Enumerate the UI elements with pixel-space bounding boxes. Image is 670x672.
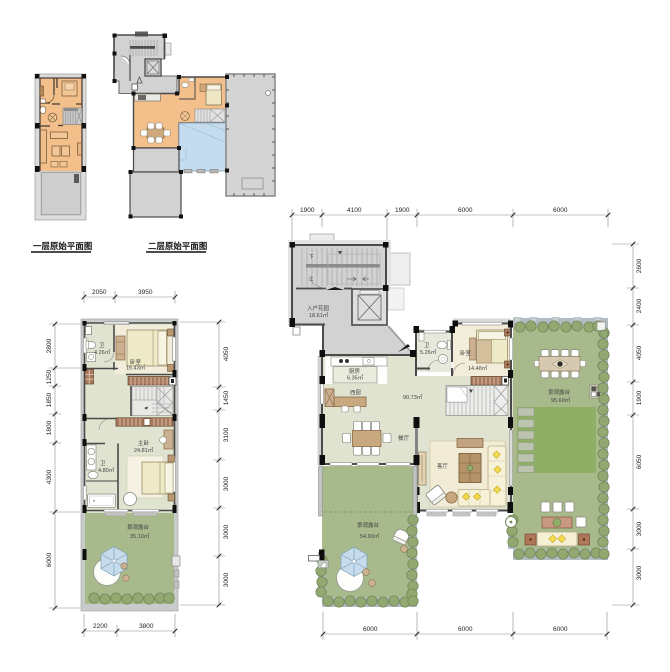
svg-text:1450: 1450 (223, 390, 230, 405)
svg-text:3000: 3000 (636, 521, 643, 536)
svg-text:18.61㎡: 18.61㎡ (309, 311, 329, 319)
svg-text:14.48㎡: 14.48㎡ (468, 364, 488, 372)
svg-text:2600: 2600 (636, 258, 643, 273)
svg-text:1250: 1250 (46, 369, 53, 384)
svg-text:4050: 4050 (223, 346, 230, 361)
svg-text:1900: 1900 (636, 390, 643, 405)
svg-text:2200: 2200 (93, 623, 108, 630)
svg-text:景观露台: 景观露台 (548, 388, 571, 396)
svg-text:6000: 6000 (458, 207, 473, 214)
svg-text:3000: 3000 (223, 572, 230, 587)
svg-text:3000: 3000 (636, 565, 643, 580)
svg-text:24.81㎡: 24.81㎡ (134, 446, 154, 454)
svg-text:6050: 6050 (636, 454, 643, 469)
svg-text:6000: 6000 (553, 626, 568, 633)
svg-text:卫: 卫 (99, 342, 105, 349)
svg-text:二层原始平面图: 二层原始平面图 (148, 241, 207, 251)
svg-text:1850: 1850 (46, 392, 53, 407)
svg-text:90.73㎡: 90.73㎡ (403, 393, 423, 401)
svg-text:卫: 卫 (100, 460, 106, 467)
svg-text:1900: 1900 (300, 207, 315, 214)
svg-text:6000: 6000 (46, 552, 53, 567)
svg-text:餐厅: 餐厅 (398, 434, 410, 442)
svg-text:5.26㎡: 5.26㎡ (420, 348, 437, 356)
svg-text:西厨: 西厨 (350, 390, 362, 397)
svg-text:景观露台: 景观露台 (357, 521, 380, 529)
svg-text:厨房: 厨房 (349, 367, 361, 375)
svg-text:4300: 4300 (46, 469, 53, 484)
svg-text:客厅: 客厅 (437, 462, 449, 470)
svg-text:3950: 3950 (138, 289, 153, 296)
svg-text:4100: 4100 (347, 207, 362, 214)
svg-text:6000: 6000 (458, 626, 473, 633)
svg-text:6000: 6000 (363, 626, 378, 633)
svg-text:主卧: 主卧 (138, 439, 150, 447)
svg-text:4050: 4050 (636, 345, 643, 360)
svg-text:3000: 3000 (223, 476, 230, 491)
svg-text:1800: 1800 (46, 420, 53, 435)
svg-text:4.80㎡: 4.80㎡ (98, 466, 115, 474)
svg-text:3800: 3800 (139, 623, 154, 630)
svg-text:4.26㎡: 4.26㎡ (94, 348, 111, 356)
svg-text:1900: 1900 (395, 207, 410, 214)
svg-text:16.43㎡: 16.43㎡ (126, 364, 146, 372)
svg-text:2400: 2400 (636, 298, 643, 313)
svg-text:6.35㎡: 6.35㎡ (347, 374, 364, 382)
svg-text:54.90㎡: 54.90㎡ (360, 532, 380, 540)
svg-text:一层原始平面图: 一层原始平面图 (33, 241, 92, 251)
svg-text:卫: 卫 (424, 342, 430, 349)
svg-text:景观露台: 景观露台 (127, 523, 150, 531)
svg-text:入户花园: 入户花园 (307, 304, 330, 312)
svg-text:3000: 3000 (223, 524, 230, 539)
svg-text:3100: 3100 (223, 427, 230, 442)
svg-text:6000: 6000 (553, 207, 568, 214)
svg-text:35.10㎡: 35.10㎡ (130, 532, 150, 540)
svg-text:2050: 2050 (92, 289, 107, 296)
svg-text:95.60㎡: 95.60㎡ (551, 396, 571, 404)
svg-text:卧室: 卧室 (460, 349, 472, 357)
svg-text:2800: 2800 (46, 338, 53, 353)
